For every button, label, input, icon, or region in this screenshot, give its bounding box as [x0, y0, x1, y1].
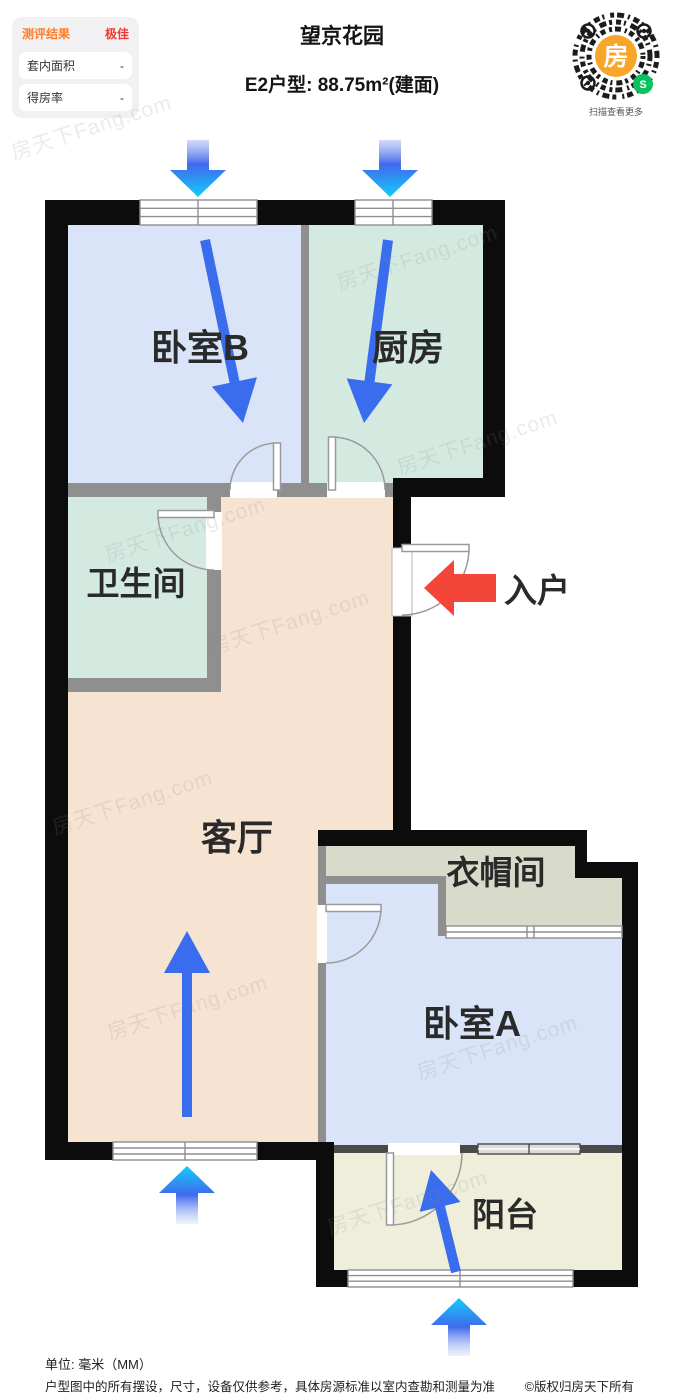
footer-unit: 单位: 毫米（MM）	[45, 1354, 152, 1373]
footer-disclaimer: 户型图中的所有摆设，尺寸，设备仅供参考，具体房源标准以室内查勘和测量为准	[45, 1376, 495, 1395]
floorplan-drawing: 入户 卧室B 厨房 卫生间 客厅 衣帽间 卧室A 阳台 房天下Fang.com …	[0, 0, 684, 1400]
room-fills	[68, 225, 622, 1270]
room-label-balcony: 阳台	[472, 1196, 538, 1233]
balcony-window	[348, 1270, 573, 1287]
window-arrow-up-icon	[159, 1166, 215, 1224]
entrance-label: 入户	[504, 572, 570, 609]
footer-copyright: ©版权归房天下所有	[525, 1376, 634, 1395]
cloakroom-sliding-door	[446, 926, 622, 938]
window-arrow-down-icon	[362, 140, 418, 197]
kitchen-window	[355, 200, 432, 225]
living-room-window	[113, 1142, 257, 1160]
room-label-bathroom: 卫生间	[87, 565, 186, 602]
room-label-cloakroom: 衣帽间	[447, 854, 546, 891]
room-label-bedroom-b: 卧室B	[151, 327, 249, 368]
bedroom-b-window	[140, 200, 257, 225]
window-arrow-down-icon	[170, 140, 226, 197]
room-label-kitchen: 厨房	[372, 327, 444, 368]
watermark-text: 房天下Fang.com	[8, 91, 174, 165]
room-label-living-room: 客厅	[201, 817, 273, 858]
entrance-arrow-icon	[424, 560, 496, 616]
bedroom-a-window	[478, 1144, 580, 1154]
entrance-marker: 入户	[424, 560, 570, 616]
floorplan-page: 测评结果 极佳 套内面积 - 得房率 - 望京花园 E2户型: 88.75m²(…	[0, 0, 684, 1400]
window-arrow-up-icon	[431, 1298, 487, 1356]
